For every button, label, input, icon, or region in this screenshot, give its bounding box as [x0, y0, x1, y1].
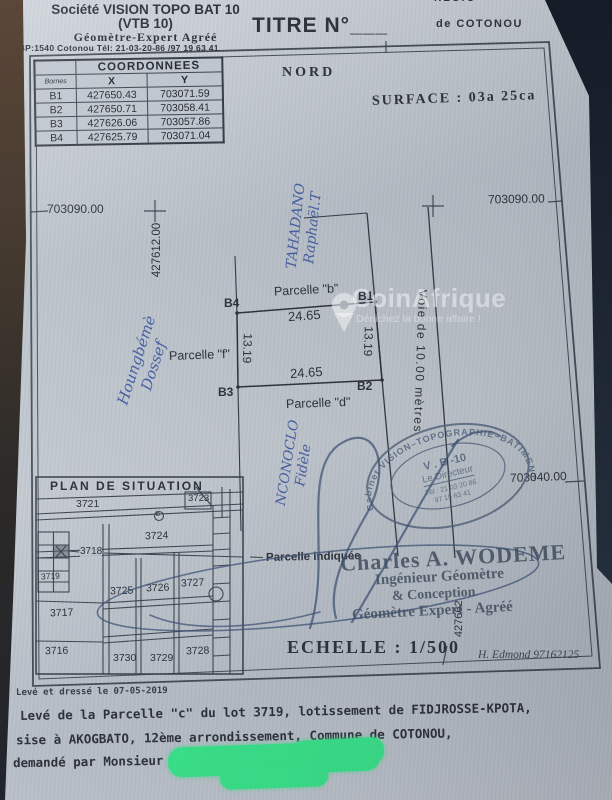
borne-cell: B2	[35, 102, 77, 117]
lot-3724-label: 3724	[145, 531, 169, 543]
road-marker-b: b	[156, 511, 160, 518]
doc-title: TITRE N°___	[252, 15, 388, 37]
length-right: 13.19	[361, 316, 375, 366]
compass-label: NORD	[282, 66, 335, 81]
footer-line2: sise à AKOGBATO, 12ème arrondissement, C…	[16, 727, 453, 747]
corner-b2-label: B2	[357, 380, 372, 393]
grid-y-top-left: 703090.00	[47, 203, 104, 216]
company-acronym: (VTB 10)	[28, 17, 263, 31]
redaction-marker	[220, 764, 329, 790]
road-lines	[304, 207, 455, 558]
corner-b4-label: B4	[224, 297, 239, 310]
lot-3716-label: 3716	[45, 646, 69, 657]
borne-cell: B1	[35, 88, 77, 103]
surface-label: SURFACE : 03a 25ca	[372, 89, 537, 109]
x-cell: 427625.79	[77, 129, 148, 145]
lot-3727-label: 3727	[181, 577, 205, 589]
redaction-marker	[291, 737, 384, 768]
grid-x-left: 427612.00	[151, 210, 163, 290]
svg-text:Cabinet VISION–TOPOGRAPHIE–BA: Cabinet VISION–TOPOGRAPHIE–BATIMENT-10	[352, 411, 540, 519]
stamp-line3: Tél : 21 03 20 86	[424, 479, 477, 498]
road-label: Voie de 10.00 mètres	[411, 271, 430, 451]
company-name: Société VISION TOPO BAT 10	[28, 3, 263, 17]
col-header-y: Y	[147, 72, 223, 87]
doc-title-blank: ___	[350, 14, 388, 37]
lot-3723-label: 3723	[188, 494, 209, 504]
y-cell: 703071.59	[147, 86, 223, 101]
length-left: 13.19	[240, 323, 254, 373]
lot-3726-label: 3726	[146, 583, 170, 595]
col-header-x: X	[76, 73, 147, 88]
length-bottom: 24.65	[290, 365, 323, 381]
parcel-f-label: Parcelle "f"	[169, 348, 230, 363]
company-block: Société VISION TOPO BAT 10 (VTB 10) Géom…	[28, 3, 263, 44]
y-cell: 703071.04	[148, 128, 224, 144]
lot-3719-label: 3719	[41, 572, 60, 582]
lot-3721-label: 3721	[76, 499, 99, 510]
company-address: 02 BP:1540 Cotonou Tél: 21-03-20-86 /97 …	[6, 44, 219, 53]
surveyor-role3: Géomètre Expert - Agréé	[352, 600, 514, 624]
scanned-survey-title-photo: RÉGIO Société VISION TOPO BAT 10 (VTB 10…	[0, 0, 612, 800]
footer-line1: Levé de la Parcelle "c" du lot 3719, lot…	[20, 701, 532, 722]
scale-label: ECHELLE : 1/500	[287, 638, 460, 657]
agent-note: H. Edmond 97162125	[478, 649, 579, 661]
stamp-ring-text: Cabinet VISION–TOPOGRAPHIE–BATIMENT-10	[352, 411, 540, 519]
city-label: de COTONOU	[436, 19, 523, 31]
x-cell: 427650.43	[76, 87, 147, 102]
col-header-bornes: Bornes	[35, 74, 77, 89]
grid-y-mid-right: 703040.00	[510, 470, 567, 485]
borne-cell: B3	[35, 116, 77, 131]
y-cell: 703057.86	[148, 114, 224, 129]
lot-3718-label: 3718	[80, 547, 102, 558]
table-row: B4 427625.79 703071.04	[36, 128, 224, 146]
grid-y-top-right: 703090.00	[488, 193, 545, 207]
y-cell: 703058.41	[147, 100, 223, 115]
region-partial-text: RÉGIO	[434, 0, 476, 3]
corner-b1-label: B1	[358, 290, 373, 303]
lot-3725-label: 3725	[110, 586, 134, 598]
lot-3717-label: 3717	[50, 608, 74, 620]
footer-line3: demandé par Monsieur	[13, 754, 164, 769]
coordinates-table: COORDONNEES Bornes X Y B1 427650.43 7030…	[33, 56, 224, 146]
x-cell: 427650.71	[77, 101, 148, 116]
parcel-b-label: Parcelle "b"	[274, 282, 339, 298]
lot-3730-label: 3730	[113, 653, 136, 664]
stamp-line4: 97 19 63 41	[434, 489, 472, 504]
handwritten-name-top: TAHADANO Raphaël.T	[282, 171, 327, 284]
stamp-line1: V . B -10	[422, 452, 467, 473]
borne-cell: B4	[36, 130, 78, 145]
lot-3728-label: 3728	[186, 646, 210, 658]
stamp-line2: Le Directeur	[421, 463, 474, 485]
doc-title-text: TITRE N°	[252, 14, 350, 37]
corner-b3-label: B3	[218, 386, 233, 399]
situation-map-lines	[36, 477, 263, 674]
footer-drawn-date: Levé et dressé le 07-05-2019	[16, 687, 168, 699]
situation-title: PLAN DE SITUATION	[50, 480, 204, 493]
x-cell: 427626.06	[77, 115, 148, 130]
lot-3729-label: 3729	[150, 653, 173, 664]
handwritten-name-bottom: NCONOCLO Fidèle	[271, 405, 321, 524]
length-top: 24.65	[288, 308, 321, 324]
